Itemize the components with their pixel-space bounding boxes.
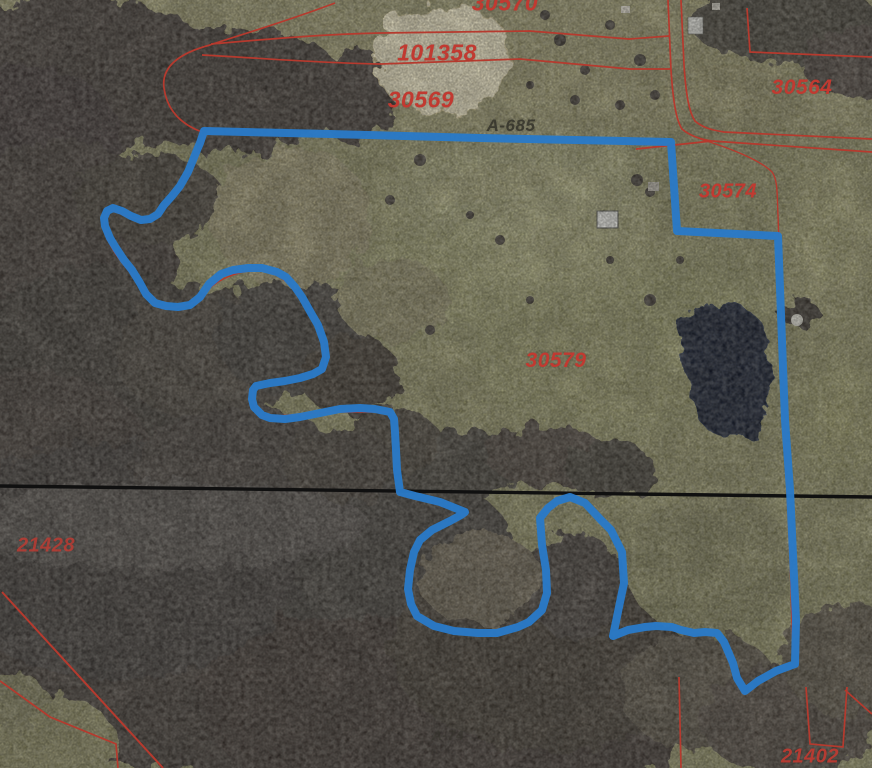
aerial-map-viewport[interactable]: 3057010135830569A-6853056430574305792142… — [0, 0, 872, 768]
aerial-map-canvas — [0, 0, 872, 768]
texture-blotch — [0, 0, 872, 768]
